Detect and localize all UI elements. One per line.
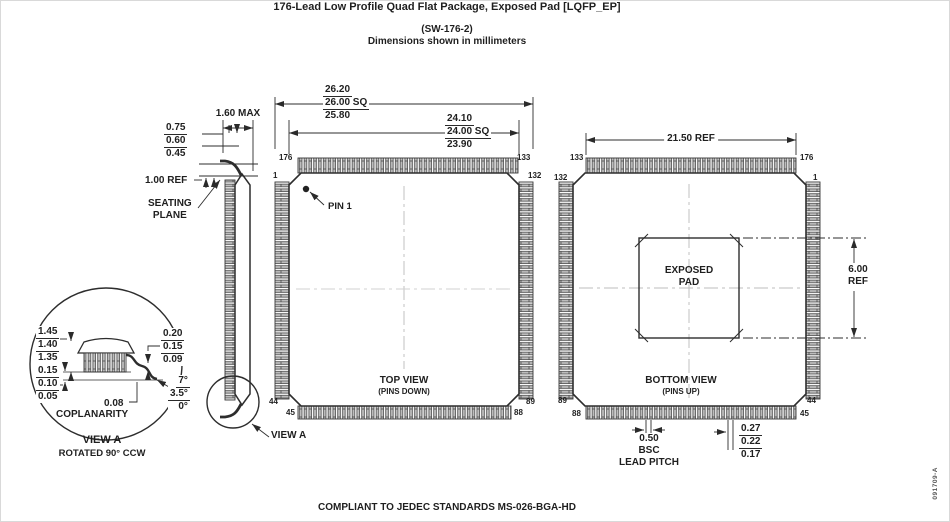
dim-lead-pitch-stack: 0.50 BSC LEAD PITCH xyxy=(617,433,681,469)
bottom-view-sublabel: (PINS UP) xyxy=(662,387,699,396)
view-a-callout-label: VIEW A xyxy=(271,430,306,441)
pin-label-45-bottom: 45 xyxy=(800,409,809,418)
view-a-title: VIEW A xyxy=(83,434,122,446)
pin-label-176-bottom: 176 xyxy=(800,153,813,162)
pin1-label: PIN 1 xyxy=(328,201,352,212)
drawing-geometry xyxy=(1,1,950,522)
bottom-view-geometry xyxy=(559,133,867,450)
top-view-label: TOP VIEW xyxy=(380,375,429,386)
dim-lead-thickness-stack: 0.20 0.15 0.09 xyxy=(161,328,184,366)
top-view-geometry xyxy=(275,97,533,419)
exposed-pad-label: EXPOSED PAD xyxy=(665,265,713,288)
pin-label-1-bottom: 1 xyxy=(813,173,817,182)
dim-lead-width-stack: 0.27 0.22 0.17 xyxy=(739,423,762,461)
package-outline-drawing: 176-Lead Low Profile Quad Flat Package, … xyxy=(0,0,950,522)
pin-label-89-top: 89 xyxy=(526,397,535,406)
dim-body-thickness-stack: 1.45 1.40 1.35 xyxy=(36,326,59,364)
top-view-sublabel: (PINS DOWN) xyxy=(378,387,430,396)
pin-label-44-top: 44 xyxy=(269,397,278,406)
dim-standoff: 1.00 REF xyxy=(145,175,187,186)
pin-label-1-top: 1 xyxy=(273,171,277,180)
pin-label-133-top: 133 xyxy=(517,153,530,162)
drawing-units-note: Dimensions shown in millimeters xyxy=(1,36,893,47)
dim-foot-length-stack: 0.75 0.60 0.45 xyxy=(164,122,187,160)
pin-label-88-bottom: 88 xyxy=(572,409,581,418)
view-a-subtitle: ROTATED 90° CCW xyxy=(59,448,146,459)
pin-label-45-top: 45 xyxy=(286,408,295,417)
dim-pad-size: 6.00 REF xyxy=(845,264,871,287)
pin-label-133-bottom: 133 xyxy=(570,153,583,162)
pin-label-89-bottom: 89 xyxy=(558,396,567,405)
pin-label-44-bottom: 44 xyxy=(807,396,816,405)
seating-plane-label: SEATING PLANE xyxy=(148,198,192,221)
dim-overall-height: 1.60 MAX xyxy=(216,108,260,119)
jedec-compliance-note: COMPLIANT TO JEDEC STANDARDS MS-026-BGA-… xyxy=(1,502,893,513)
dim-standoff-height-stack: 0.15 0.10 0.05 xyxy=(36,365,59,403)
pin-label-132-bottom: 132 xyxy=(554,173,567,182)
drawing-title: 176-Lead Low Profile Quad Flat Package, … xyxy=(1,1,893,13)
side-view-geometry xyxy=(194,120,269,437)
dim-overall-span-stack: 26.20 26.00 SQ 25.80 xyxy=(323,84,369,122)
bottom-view-label: BOTTOM VIEW xyxy=(645,375,716,386)
dim-lead-span: 21.50 REF xyxy=(664,133,718,144)
coplanarity-label: COPLANARITY xyxy=(56,409,128,420)
document-revision-number: 091709-A xyxy=(932,467,939,500)
pin-label-88-top: 88 xyxy=(514,408,523,417)
dim-body-span-stack: 24.10 24.00 SQ 23.90 xyxy=(445,113,491,151)
coplanarity-value: 0.08 xyxy=(104,398,123,409)
pin-label-176-top: 176 xyxy=(279,153,292,162)
dim-foot-angle-stack: 7° 3.5° 0° xyxy=(168,375,190,413)
drawing-number: (SW-176-2) xyxy=(1,24,893,35)
pin-label-132-top: 132 xyxy=(528,171,541,180)
